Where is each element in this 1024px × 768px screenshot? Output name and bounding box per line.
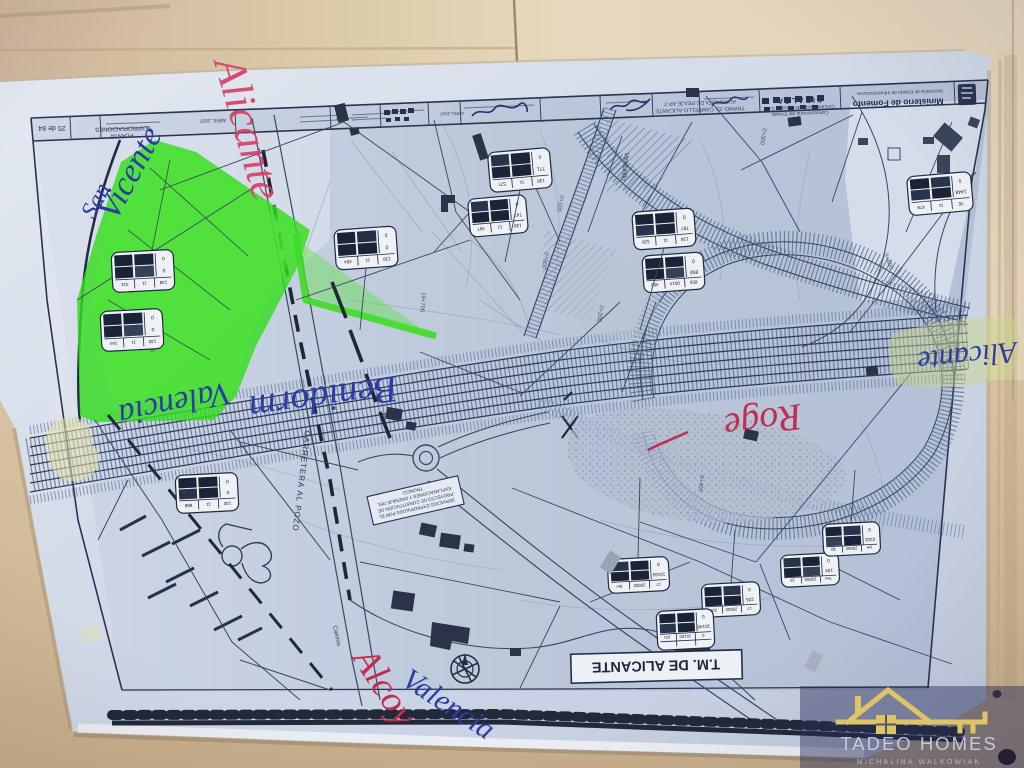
svg-text:MICHALINA WALKOWIAK: MICHALINA WALKOWIAK xyxy=(857,759,981,766)
svg-text:TADEO HOMES: TADEO HOMES xyxy=(840,733,997,754)
